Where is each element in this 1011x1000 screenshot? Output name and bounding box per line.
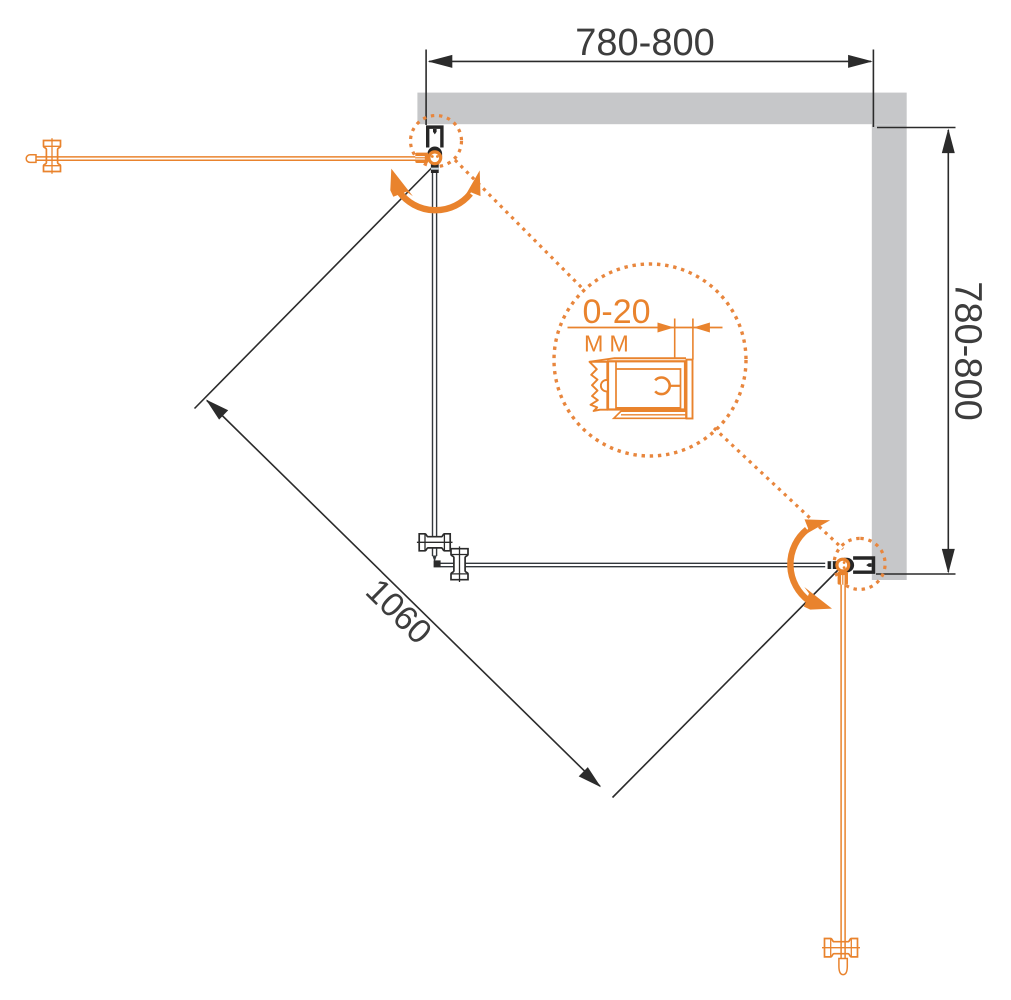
svg-text:0-20: 0-20 — [583, 293, 651, 331]
svg-text:ММ: ММ — [584, 331, 635, 357]
svg-text:780-800: 780-800 — [575, 22, 714, 64]
svg-text:780-800: 780-800 — [947, 281, 989, 420]
